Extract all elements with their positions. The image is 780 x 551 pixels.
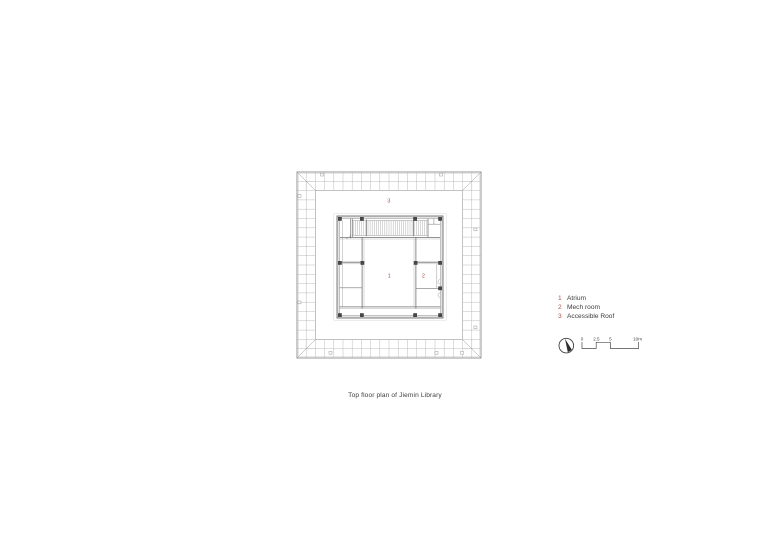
grid-fixture-mark — [440, 173, 443, 176]
structural-column — [438, 261, 442, 265]
legend: 1 Atrium 2 Mech room 3 Accessible Roof — [558, 294, 614, 322]
scale-tick-0: 0 — [581, 336, 584, 341]
drawing-sheet: 3 1 2 0 2.5 5 10m 1 Atrium 2 Mech room 3… — [0, 0, 780, 551]
legend-label: Atrium — [567, 294, 586, 303]
grid-fixture-mark — [329, 351, 332, 354]
structural-column — [338, 261, 342, 265]
structural-column — [361, 261, 365, 265]
structural-column — [360, 217, 364, 221]
grid-fixture-mark — [474, 326, 477, 329]
inner-building — [337, 216, 443, 318]
legend-number: 1 — [558, 294, 567, 303]
structural-column — [338, 313, 342, 317]
interior-walls — [340, 219, 441, 309]
scale-bar-line — [582, 342, 639, 349]
door-swing-arc — [438, 280, 440, 285]
structural-column — [438, 286, 442, 290]
door-swing-arc — [438, 293, 440, 298]
legend-item-mech-room: 2 Mech room — [558, 303, 614, 312]
wall-poche — [338, 217, 442, 317]
structural-columns — [338, 217, 442, 317]
grid-fixture-mark — [298, 195, 301, 198]
exterior-wall-outer-line — [337, 216, 443, 318]
skylight-louver-hatch — [352, 219, 428, 238]
structural-column — [413, 313, 417, 317]
drawing-caption: Top floor plan of Jiemin Library — [348, 392, 442, 399]
grid-fixture-mark — [321, 173, 324, 176]
structural-column — [438, 217, 442, 221]
grid-fixture-mark — [474, 228, 477, 231]
legend-label: Mech room — [567, 303, 600, 312]
structural-column — [414, 261, 418, 265]
room-label-accessible-roof: 3 — [387, 199, 390, 205]
legend-label: Accessible Roof — [567, 312, 614, 321]
structural-column — [438, 313, 442, 317]
scale-bar: 0 2.5 5 10m — [581, 336, 643, 348]
floor-plan-svg: 3 1 2 0 2.5 5 10m — [0, 0, 780, 551]
legend-number: 2 — [558, 303, 567, 312]
legend-number: 3 — [558, 312, 567, 321]
north-arrow-icon — [559, 338, 574, 353]
room-label-atrium: 1 — [388, 273, 391, 279]
legend-item-accessible-roof: 3 Accessible Roof — [558, 312, 614, 321]
legend-item-atrium: 1 Atrium — [558, 294, 614, 303]
grid-band-mid-line — [306, 181, 472, 348]
grid-fixture-mark — [298, 301, 301, 304]
structural-column — [338, 217, 342, 221]
louver-lines — [353, 220, 427, 235]
scale-tick-5: 5 — [609, 336, 612, 341]
grid-fixture-mark — [435, 351, 438, 354]
scale-tick-2-5: 2.5 — [593, 336, 600, 341]
scale-tick-10m: 10m — [633, 336, 642, 341]
structural-column — [413, 217, 417, 221]
grid-fixture-mark — [461, 351, 464, 354]
structural-column — [360, 313, 364, 317]
north-arrow-circle — [559, 338, 574, 353]
exterior-wall-inner-line — [340, 219, 441, 316]
room-label-mech-room: 2 — [422, 273, 425, 279]
